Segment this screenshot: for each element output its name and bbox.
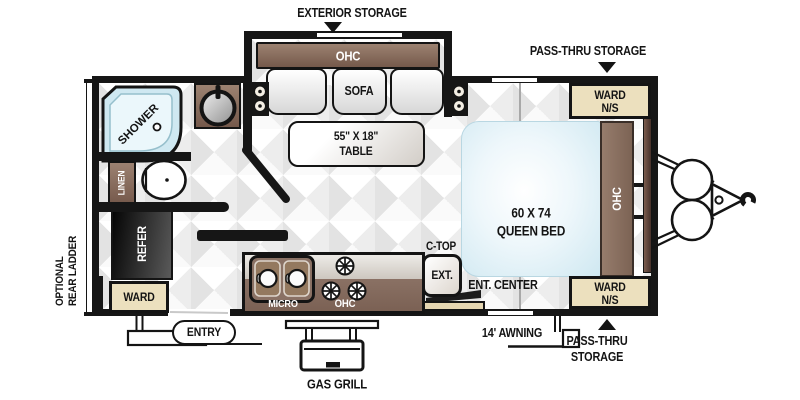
bath-wall	[99, 202, 229, 212]
rv-floorplan: SHOWER	[0, 0, 800, 400]
kitchen-ohc-label: OHC	[335, 298, 356, 310]
arrow-down-icon	[324, 22, 342, 33]
propane-tank-icon	[672, 200, 712, 240]
gas-grill-label: GAS GRILL	[307, 377, 367, 392]
ent-center-label: ENT. CENTER	[468, 278, 537, 292]
exterior-storage-label: EXTERIOR STORAGE	[297, 6, 406, 20]
ladder-cap	[84, 312, 95, 316]
refer-label: REFER	[135, 226, 149, 262]
entry-label: ENTRY	[187, 325, 221, 339]
sofa-label: SOFA	[345, 84, 374, 98]
hitch-coupler-icon	[740, 192, 755, 207]
queen-bed	[461, 121, 601, 277]
ward-ns-bottom-label2: N/S	[602, 293, 619, 307]
pass-thru-bottom-label: PASS-THRU	[566, 334, 627, 348]
ward-ns-bottom-label: WARD	[594, 280, 625, 294]
shower-drain-icon	[154, 124, 161, 131]
speaker-icon	[450, 82, 468, 116]
bedroom-ohc-label: OHC	[610, 187, 624, 210]
bath-wall	[243, 83, 252, 152]
bath-wall	[99, 152, 191, 161]
ward-ns-top-label2: N/S	[602, 101, 619, 115]
pass-thru-top-label: PASS-THRU STORAGE	[530, 44, 646, 58]
table-size-label: 55" X 18"	[334, 129, 378, 143]
rear-ladder-label-line2: REAR LADDER	[67, 236, 80, 306]
ent-center-cabinet	[423, 301, 485, 311]
window	[492, 78, 537, 82]
bed-slide-seam	[519, 83, 521, 123]
ctop-label: C-TOP	[426, 241, 456, 253]
sofa-cushion	[266, 68, 327, 115]
galley-partition	[197, 230, 288, 241]
sofa-ohc-label: OHC	[336, 49, 361, 64]
sofa-cushion	[390, 68, 444, 115]
ward-ns-top-label: WARD	[594, 88, 625, 102]
rear-ward-label: WARD	[123, 290, 154, 304]
toilet-icon	[133, 158, 195, 202]
hitch-assembly	[648, 126, 768, 276]
pass-thru-bottom-label2: STORAGE	[571, 350, 623, 364]
awning-label: 14' AWNING	[482, 326, 542, 340]
ctop-ext-label: EXT.	[431, 268, 452, 282]
bed-size-label: 60 X 74	[511, 206, 550, 221]
arrow-down-icon	[598, 62, 616, 73]
linen-label: LINEN	[117, 171, 128, 196]
rear-ladder-label-line1: OPTIONAL	[54, 236, 67, 306]
top-wall	[444, 76, 658, 83]
ladder-cap	[84, 79, 95, 83]
bath-sink-icon	[194, 83, 241, 129]
top-wall	[92, 76, 252, 83]
table-label: TABLE	[339, 144, 372, 158]
bed-label: QUEEN BED	[497, 224, 565, 239]
speaker-icon	[251, 82, 269, 116]
rear-ladder-label: OPTIONAL REAR LADDER	[54, 236, 80, 306]
arrow-up-icon	[598, 319, 616, 330]
kitchen-sink-icon	[249, 255, 315, 303]
micro-label: MICRO	[268, 298, 298, 310]
propane-tank-icon	[672, 160, 712, 200]
rear-ladder	[86, 82, 93, 315]
gas-grill-icon	[282, 316, 382, 374]
slideout-window	[317, 33, 402, 37]
